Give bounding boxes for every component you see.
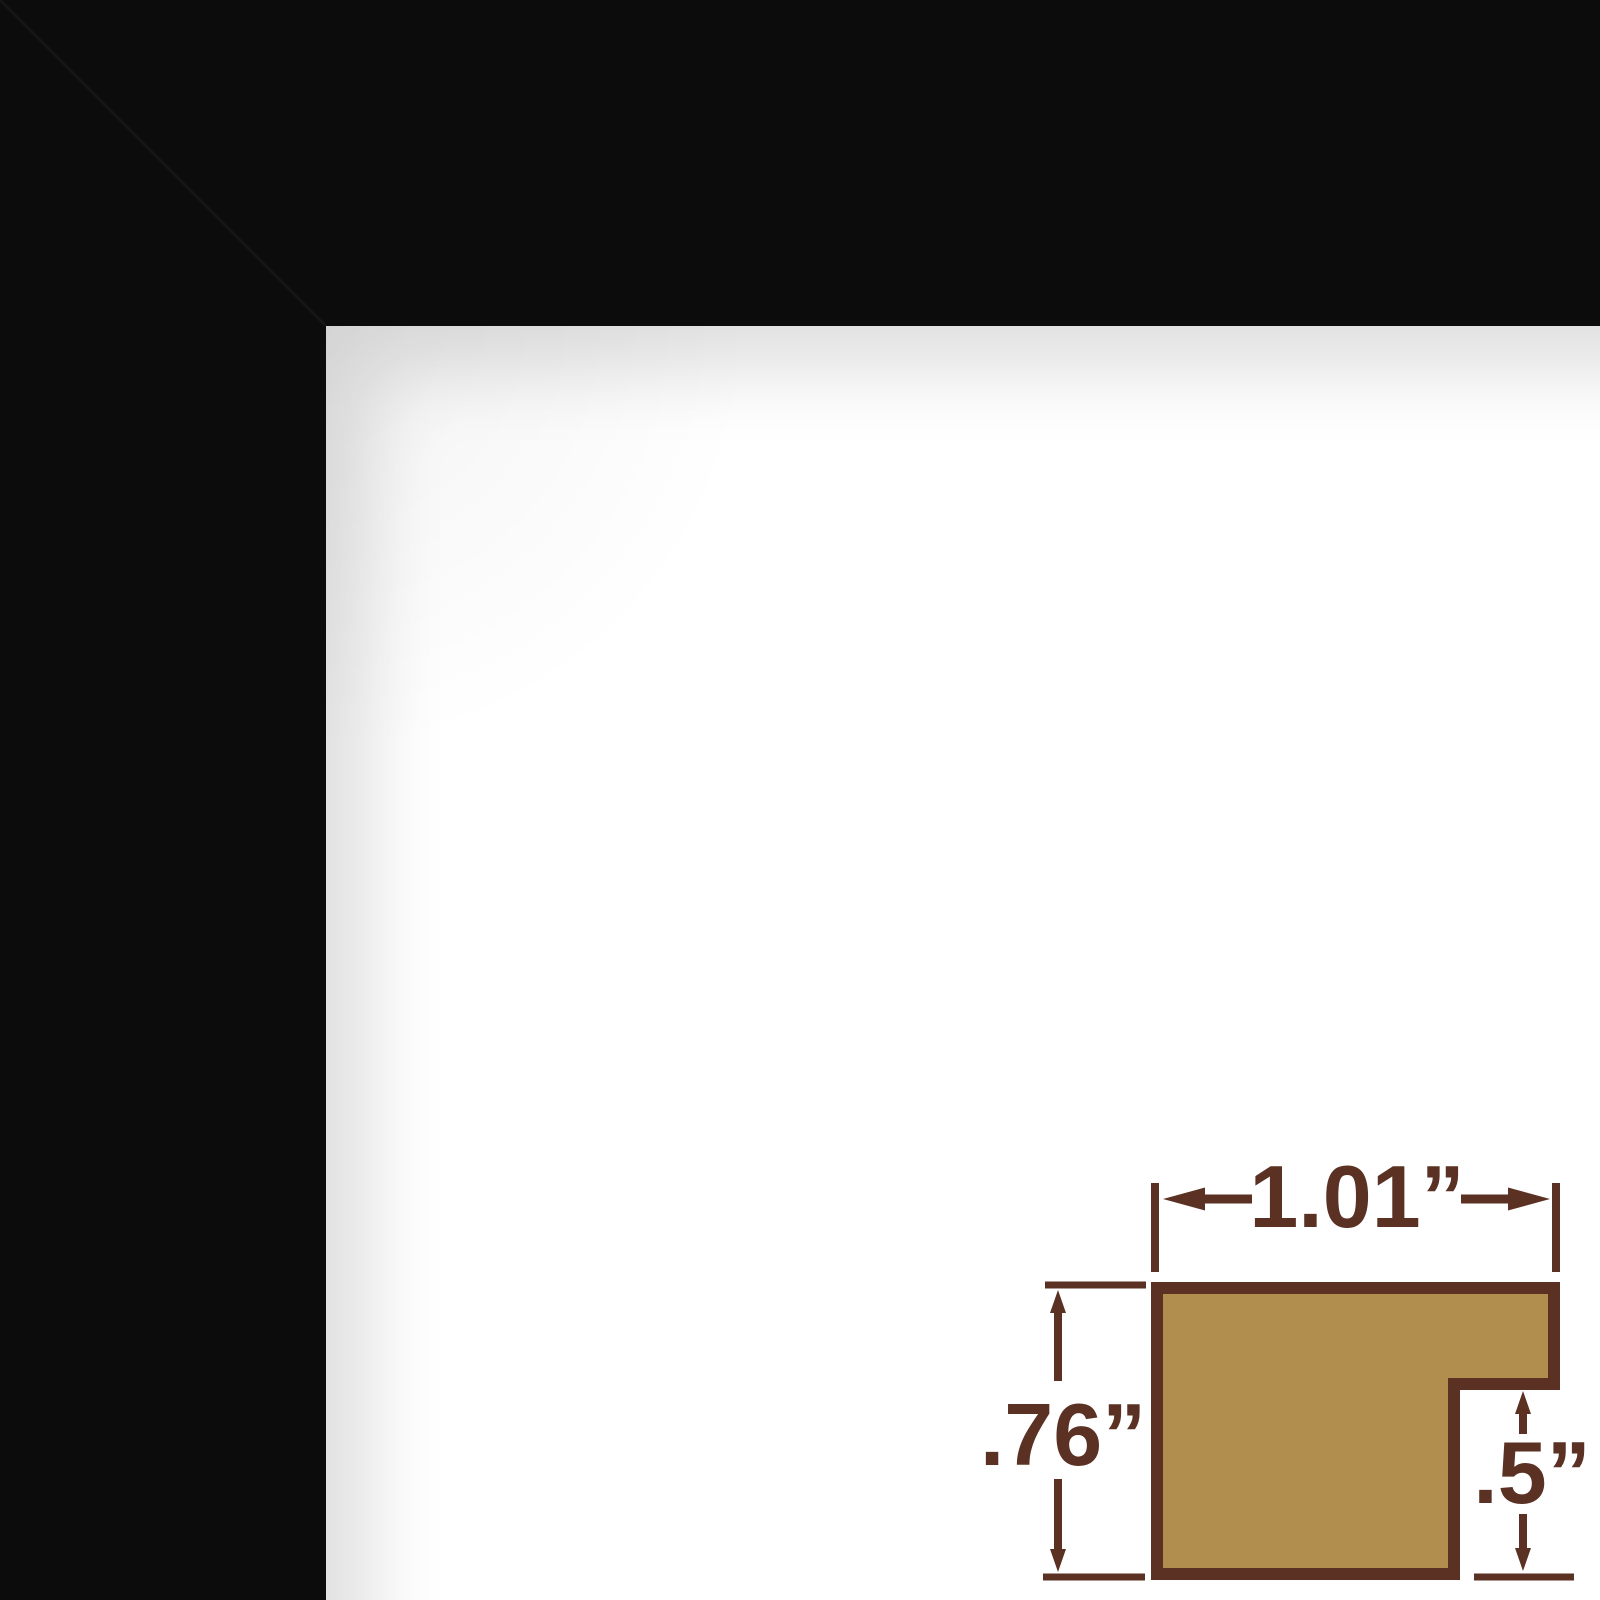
- svg-text:.76”: .76”: [980, 1385, 1146, 1484]
- svg-text:.5”: .5”: [1473, 1423, 1590, 1522]
- svg-text:1.01”: 1.01”: [1249, 1147, 1464, 1246]
